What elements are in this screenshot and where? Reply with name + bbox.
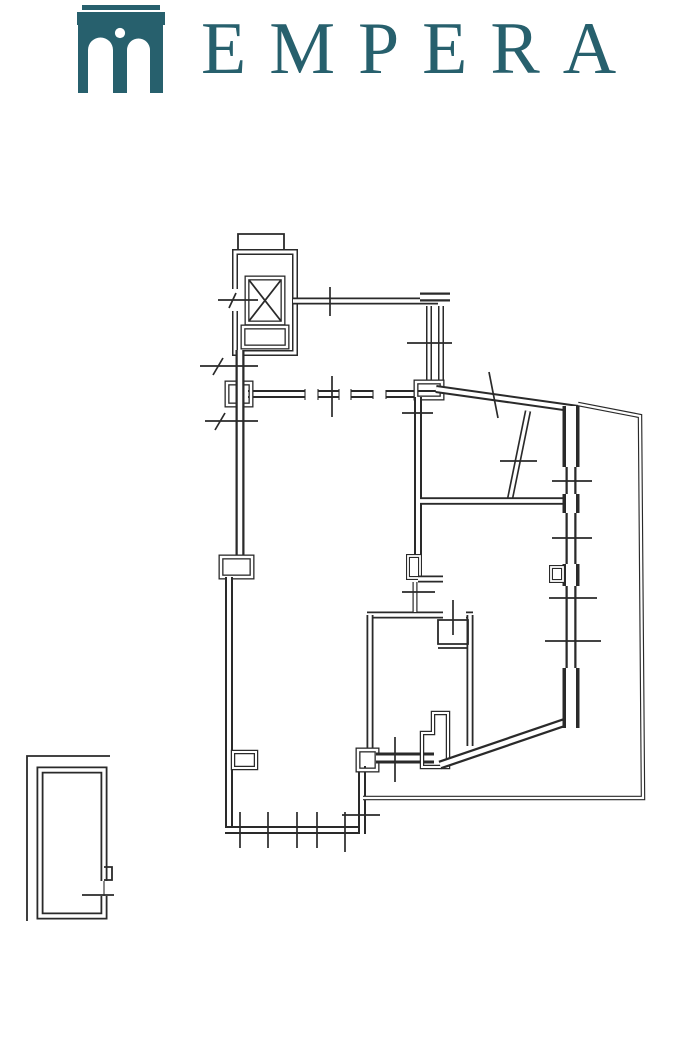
wall-pier-core (233, 752, 256, 768)
floor-plan (0, 0, 699, 1050)
wall-jog (408, 556, 420, 578)
door-opening (443, 608, 466, 621)
machine-room (243, 327, 287, 347)
pier-notch (551, 567, 563, 581)
angled-south-wall-core (440, 722, 566, 765)
glazing-gap (339, 388, 351, 400)
right-window-wall (545, 406, 601, 728)
page: EMPERA (0, 0, 699, 1050)
elevator-shaft (218, 234, 295, 353)
dimension-tick (200, 358, 258, 375)
cellar-walls (40, 770, 104, 916)
left-exterior-wall (200, 350, 258, 831)
wall-pier (221, 557, 252, 577)
cellar-room (27, 756, 114, 921)
diagonal-partition-core (510, 411, 528, 499)
glazing-gap (373, 389, 386, 399)
bathroom (358, 600, 566, 782)
angled-top-wall-core (436, 389, 578, 409)
glazing-gap (305, 388, 318, 400)
wall-pier (233, 752, 256, 768)
bottom-window-wall (225, 766, 380, 852)
machine-room-core (243, 327, 287, 347)
cellar-walls-core (40, 770, 104, 916)
dimension-tick (205, 413, 258, 430)
wall-pier-core (221, 557, 252, 577)
